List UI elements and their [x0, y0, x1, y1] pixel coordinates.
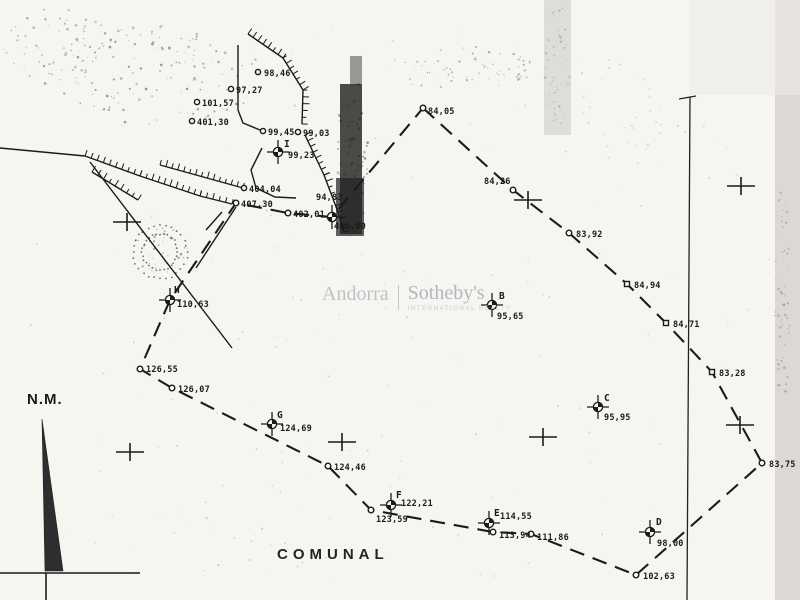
boundary-vertex-marker — [664, 321, 669, 326]
station-elevation: 460,00 — [334, 222, 366, 232]
north-arrow — [42, 419, 63, 571]
boundary-elevation-label: 111,86 — [537, 533, 569, 543]
station-letter: D — [656, 517, 662, 528]
north-label: N.M. — [27, 391, 63, 408]
boundary-elevation-label: 126,55 — [146, 365, 178, 375]
station-elevation: 95,65 — [497, 312, 524, 322]
contour-line — [196, 207, 236, 268]
boundary-vertex-marker — [625, 282, 630, 287]
spot-height-label: 101,57 — [202, 99, 234, 109]
station-elevation: 122,21 — [401, 499, 433, 509]
station-elevation: 124,69 — [280, 424, 312, 434]
station-elevation: 114,55 — [500, 512, 532, 522]
station-letter: H — [174, 285, 180, 296]
boundary-elevation-label: 102,63 — [643, 572, 675, 582]
boundary-vertex-marker — [490, 529, 496, 535]
boundary-vertex-marker — [420, 105, 426, 111]
spot-height-marker — [241, 185, 246, 190]
comunal-label: COMUNAL — [277, 546, 389, 563]
boundary-vertex-marker — [233, 200, 239, 206]
boundary-vertex-marker — [368, 507, 374, 513]
spot-height-label: 404,04 — [249, 185, 281, 195]
boundary-vertex-marker — [137, 366, 143, 372]
station-elevation: 110,63 — [177, 300, 209, 310]
spot-height-marker — [228, 86, 233, 91]
spot-height-label: 98,46 — [264, 69, 291, 79]
boundary-elevation-label: 83,75 — [769, 460, 796, 470]
brand-watermark: Andorra Sotheby's INTERNATIONAL REALTY — [322, 283, 512, 312]
station-elevation: 95,95 — [604, 413, 631, 423]
station-I: I99,23 — [267, 139, 315, 164]
station-elevation: 99,23 — [288, 151, 315, 161]
fold-line — [687, 97, 690, 600]
boundary-elevation-label: 83,92 — [576, 230, 603, 240]
boundary-vertex-marker — [285, 210, 291, 216]
watermark-subtext: INTERNATIONAL REALTY — [408, 306, 512, 312]
station-letter: I — [284, 139, 290, 150]
parcel-boundary: 84,0584,2683,9284,9484,7183,2883,75102,6… — [137, 105, 795, 582]
boundary-elevation-label: 84,05 — [428, 107, 455, 117]
boundary-elevation-label: 84,26 — [484, 177, 511, 187]
spot-height-label: 99,45 — [268, 128, 295, 138]
boundary-elevation-label: 84,94 — [634, 281, 661, 291]
station-G: G124,69 — [261, 410, 312, 436]
boundary-vertex-marker — [325, 463, 331, 469]
north-arrow-icon — [42, 419, 63, 571]
watermark-divider — [398, 285, 399, 310]
boundary-vertex-marker — [169, 385, 175, 391]
boundary-line — [140, 108, 762, 575]
boundary-elevation-label: 407,30 — [241, 200, 273, 210]
boundary-elevation-label: 123,59 — [376, 515, 408, 525]
station-elevation: 98,00 — [657, 539, 684, 549]
boundary-vertex-marker — [633, 572, 639, 578]
boundary-elevation-label: 113,94 — [499, 531, 531, 541]
contour-line — [90, 162, 232, 348]
spot-height-marker — [255, 69, 260, 74]
boundary-elevation-label: 84,71 — [673, 320, 700, 330]
scanned-survey-plan: 84,0584,2683,9284,9484,7183,2883,75102,6… — [0, 0, 800, 600]
spot-height-marker — [260, 128, 265, 133]
station-C: C95,95 — [587, 393, 631, 423]
boundary-vertex-marker — [566, 230, 572, 236]
boundary-elevation-label: 124,46 — [334, 463, 366, 473]
boundary-elevation-label: 402,01 — [293, 210, 325, 220]
boundary-elevation-label: 83,28 — [719, 369, 746, 379]
vegetation-dotted-circle — [132, 224, 188, 279]
spot-height-label: 97,27 — [236, 86, 263, 96]
boundary-vertex-marker — [710, 370, 715, 375]
boundary-vertex-marker — [759, 460, 765, 466]
spot-height-label: 401,30 — [197, 118, 229, 128]
station-D: D98,00 — [639, 517, 684, 549]
watermark-right-text: Sotheby's — [408, 283, 512, 303]
boundary-elevation-label: 126,07 — [178, 385, 210, 395]
spot-height-marker — [189, 118, 194, 123]
spot-height-marker — [295, 129, 300, 134]
watermark-left-text: Andorra — [322, 283, 389, 306]
spot-height-label: 99,03 — [303, 129, 330, 139]
station-letter: C — [604, 393, 610, 404]
boundary-vertex-marker — [510, 187, 516, 193]
station-letter: G — [277, 410, 283, 421]
station-elevation: 94,83 — [316, 193, 343, 203]
spot-heights: 98,4697,27101,57401,3099,4599,03404,04 — [189, 69, 329, 195]
spot-height-marker — [194, 99, 199, 104]
contour-line — [0, 148, 85, 156]
